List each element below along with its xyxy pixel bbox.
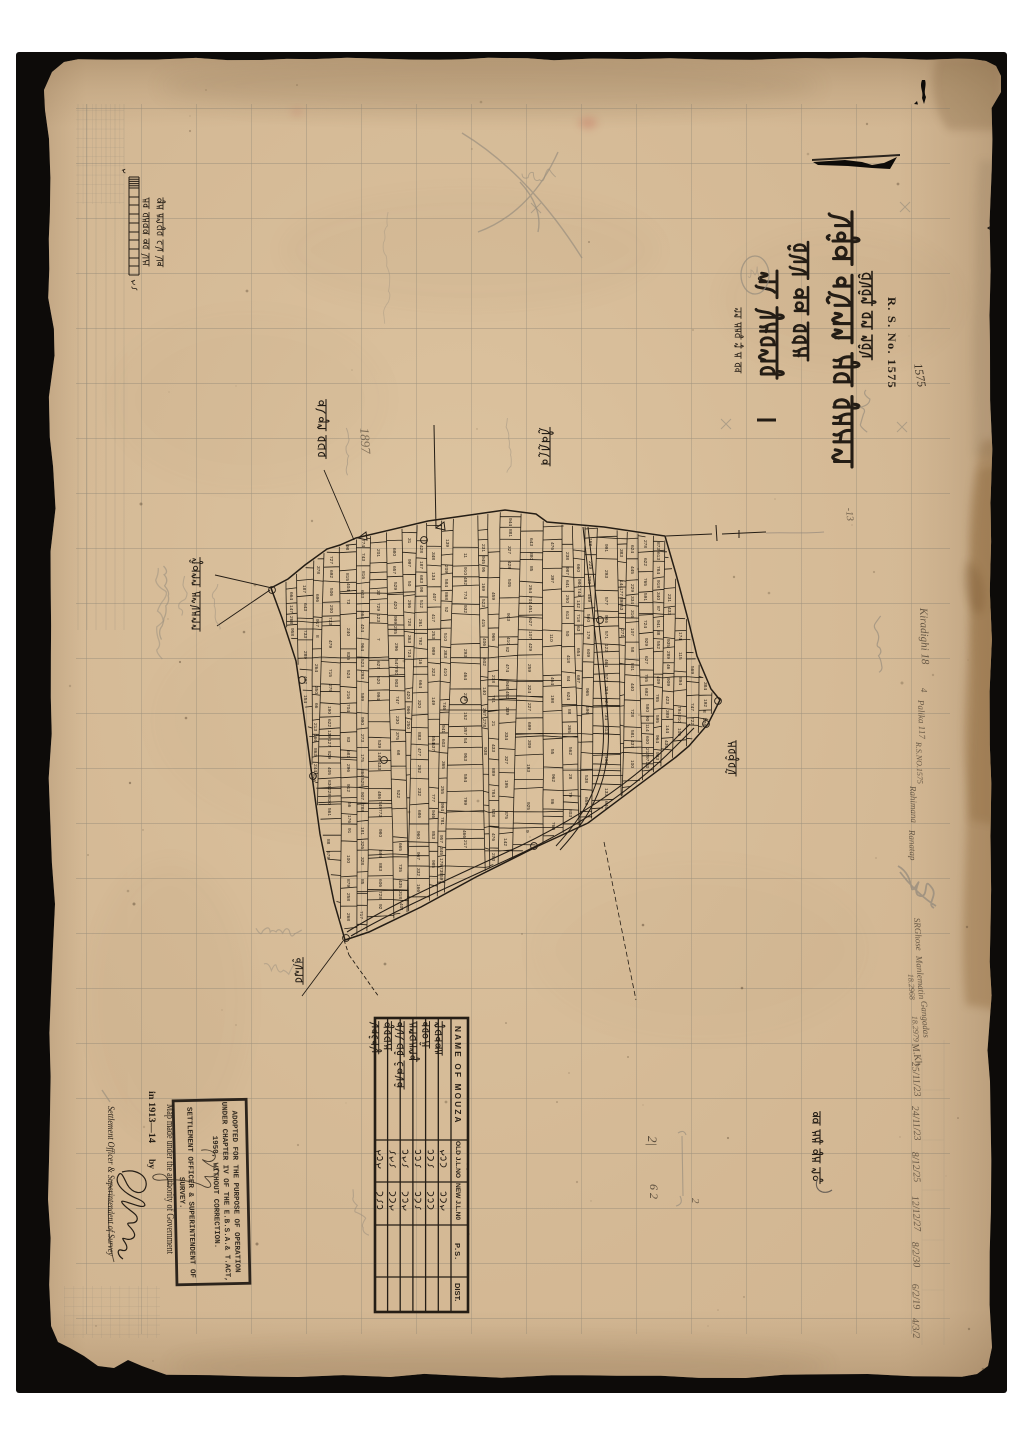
svg-text:523: 523 [480,599,486,607]
svg-text:Ranatap: Ranatap [907,829,918,861]
svg-text:378: 378 [315,566,321,574]
svg-text:122: 122 [603,644,609,652]
svg-text:401: 401 [398,903,404,911]
svg-text:747: 747 [689,703,695,711]
svg-text:999: 999 [392,616,398,624]
svg-text:198: 198 [549,695,555,703]
svg-text:941: 941 [440,725,446,733]
svg-text:55: 55 [549,749,555,755]
svg-text:87: 87 [655,606,661,612]
svg-text:NEW J.L.N0: NEW J.L.N0 [454,1183,461,1220]
svg-text:760: 760 [550,822,556,830]
svg-text:664: 664 [417,680,423,688]
svg-text:Rahimana: Rahimana [908,785,919,824]
svg-text:293: 293 [603,570,609,578]
svg-text:in 1913—14: in 1913—14 [146,1091,156,1143]
svg-text:107: 107 [527,631,533,639]
svg-text:SURVEY.: SURVEY. [177,1177,186,1209]
svg-text:418: 418 [565,655,571,663]
svg-text:363: 363 [406,635,412,643]
svg-text:271: 271 [619,629,625,637]
svg-text:476: 476 [549,542,555,550]
svg-text:909: 909 [665,678,671,686]
svg-text:552: 552 [655,641,661,649]
svg-text:744: 744 [576,588,582,596]
svg-text:665: 665 [397,843,403,851]
svg-text:704: 704 [345,704,351,712]
svg-text:2|: 2| [645,1136,660,1146]
svg-text:727: 727 [328,556,334,564]
svg-text:596: 596 [584,706,590,714]
svg-text:883: 883 [416,732,422,740]
svg-text:935: 935 [665,639,671,647]
svg-text:309: 309 [526,740,532,748]
svg-text:660: 660 [575,564,581,572]
svg-text:733: 733 [302,630,308,638]
svg-text:357: 357 [462,727,468,735]
svg-text:643: 643 [528,538,534,546]
svg-text:278: 278 [642,540,648,548]
svg-text:792: 792 [417,637,423,645]
svg-text:229: 229 [587,561,593,569]
svg-text:774: 774 [462,591,468,599]
svg-text:836: 836 [345,652,351,660]
svg-text:239: 239 [462,693,468,701]
svg-text:154: 154 [302,695,308,703]
svg-text:539: 539 [376,740,382,748]
svg-text:169: 169 [480,583,486,591]
svg-text:264: 264 [527,585,533,593]
svg-text:622: 622 [642,558,648,566]
svg-text:791: 791 [490,695,496,703]
svg-text:107: 107 [629,628,635,636]
svg-text:8/2/30: 8/2/30 [909,1241,922,1267]
svg-text:240: 240 [345,628,351,636]
svg-text:476: 476 [701,718,707,726]
svg-text:106: 106 [676,728,682,736]
svg-text:420: 420 [405,691,411,699]
svg-text:980: 980 [576,579,582,587]
svg-text:451: 451 [527,605,533,613]
svg-text:250: 250 [405,721,411,729]
svg-text:436: 436 [663,740,669,748]
svg-text:957: 957 [438,835,444,843]
svg-text:82: 82 [504,647,510,653]
svg-text:179: 179 [438,858,444,866]
svg-text:464: 464 [462,672,468,680]
svg-text:258: 258 [345,893,351,901]
svg-text:728: 728 [629,709,635,717]
svg-text:683: 683 [418,575,424,583]
svg-text:2: 2 [689,1198,701,1204]
svg-text:327: 327 [506,546,512,554]
svg-text:389: 389 [664,710,670,718]
svg-text:320: 320 [416,700,422,708]
svg-text:794: 794 [676,706,682,714]
svg-text:428: 428 [418,545,424,553]
svg-text:383: 383 [442,650,448,658]
svg-text:201: 201 [375,549,381,557]
svg-text:187: 187 [418,561,424,569]
svg-text:734: 734 [603,712,609,720]
svg-text:433: 433 [490,744,496,752]
svg-text:289: 289 [302,651,308,659]
svg-text:86: 86 [549,799,555,805]
svg-text:476: 476 [490,833,496,841]
svg-text:50: 50 [406,581,412,587]
svg-text:464: 464 [549,677,555,685]
svg-text:873: 873 [655,542,661,550]
svg-text:350: 350 [313,686,319,694]
svg-text:228: 228 [326,788,332,796]
svg-text:380: 380 [528,552,534,560]
svg-text:123: 123 [375,614,381,622]
svg-text:912: 912 [345,784,351,792]
svg-text:149: 149 [376,752,382,760]
svg-text:654: 654 [575,648,581,656]
svg-text:735: 735 [397,864,403,872]
svg-text:83: 83 [345,737,351,743]
svg-text:410: 410 [505,637,511,645]
svg-text:512: 512 [418,600,424,608]
svg-text:100: 100 [629,760,635,768]
svg-text:6 2: 6 2 [647,1184,661,1199]
svg-text:664: 664 [288,592,294,600]
svg-text:520: 520 [375,676,381,684]
svg-text:606: 606 [377,879,383,887]
svg-text:139: 139 [326,730,332,738]
svg-text:784: 784 [655,566,661,574]
svg-text:953: 953 [462,753,468,761]
svg-text:964: 964 [359,643,365,651]
svg-text:54: 54 [462,738,468,744]
svg-text:88: 88 [655,630,661,636]
svg-text:244: 244 [312,764,318,772]
svg-text:365: 365 [566,725,572,733]
svg-text:917: 917 [314,619,320,627]
svg-text:529: 529 [392,582,398,590]
svg-text:293: 293 [462,649,468,657]
svg-text:600: 600 [644,736,650,744]
svg-text:32: 32 [375,590,381,596]
svg-text:231: 231 [480,544,486,552]
svg-text:142: 142 [575,600,581,608]
svg-text:98: 98 [418,587,424,593]
svg-text:98: 98 [344,545,350,551]
svg-text:8/12/25: 8/12/25 [909,1151,922,1182]
svg-text:452: 452 [504,691,510,699]
svg-text:6/2/19: 6/2/19 [909,1283,922,1309]
svg-text:110: 110 [548,634,554,642]
svg-text:103: 103 [603,756,609,764]
svg-text:84: 84 [565,676,571,682]
svg-text:932: 932 [462,605,468,613]
svg-text:594: 594 [462,774,468,782]
svg-text:127: 127 [326,739,332,747]
svg-text:56: 56 [346,802,352,808]
svg-text:990: 990 [359,717,365,725]
svg-text:440: 440 [629,683,635,691]
svg-text:268: 268 [288,616,294,624]
svg-text:824: 824 [603,698,609,706]
svg-text:7: 7 [375,638,381,641]
svg-text:743: 743 [360,553,366,561]
svg-text:997: 997 [406,559,412,567]
svg-text:250: 250 [564,595,570,603]
svg-text:581: 581 [629,730,635,738]
svg-text:627: 627 [643,656,649,664]
svg-text:231: 231 [666,594,672,602]
svg-text:17: 17 [917,730,927,740]
svg-text:903: 903 [505,613,511,621]
svg-text:334: 334 [629,596,635,604]
svg-text:528: 528 [490,809,496,817]
svg-text:285: 285 [392,626,398,634]
svg-text:960: 960 [415,831,421,839]
svg-text:866: 866 [359,769,365,777]
svg-text:8: 8 [314,635,320,638]
svg-text:429: 429 [527,643,533,651]
svg-text:168: 168 [587,538,593,546]
svg-text:332: 332 [415,868,421,876]
svg-text:384: 384 [702,682,708,690]
svg-text:-13: -13 [843,507,855,521]
svg-text:989: 989 [430,647,436,655]
svg-text:410: 410 [442,668,448,676]
svg-text:73: 73 [345,599,351,605]
svg-text:348: 348 [430,552,436,560]
svg-text:9: 9 [524,830,530,833]
svg-text:692: 692 [328,570,334,578]
svg-text:728: 728 [377,891,383,899]
svg-text:142: 142 [502,838,508,846]
svg-text:599: 599 [359,693,365,701]
svg-text:945: 945 [480,556,486,564]
svg-text:375: 375 [394,732,400,740]
svg-text:883: 883 [377,863,383,871]
svg-text:641: 641 [564,580,570,588]
svg-text:718: 718 [575,614,581,622]
svg-text:591: 591 [642,593,648,601]
svg-text:21: 21 [490,721,496,727]
svg-text:85: 85 [359,879,365,885]
svg-text:561: 561 [326,808,332,816]
svg-text:829: 829 [326,751,332,759]
svg-text:894: 894 [677,677,683,685]
svg-text:DIST.: DIST. [453,1283,462,1301]
svg-text:715: 715 [327,669,333,677]
svg-text:365: 365 [440,761,446,769]
svg-text:962: 962 [550,774,556,782]
svg-text:659: 659 [583,797,589,805]
svg-text:209: 209 [443,565,449,573]
svg-text:174: 174 [677,632,683,640]
svg-text:193: 193 [525,764,531,772]
svg-text:Kiradighi 18: Kiradighi 18 [917,607,931,665]
svg-text:755: 755 [643,674,649,682]
svg-text:907: 907 [359,792,365,800]
svg-text:424: 424 [359,624,365,632]
svg-text:261: 261 [417,619,423,627]
svg-text:699: 699 [377,850,383,858]
svg-text:324: 324 [526,685,532,693]
svg-text:646: 646 [603,801,609,809]
svg-text:965: 965 [584,688,590,696]
svg-text:85: 85 [528,566,534,572]
svg-text:293: 293 [490,853,496,861]
svg-text:889: 889 [490,768,496,776]
svg-text:404: 404 [345,583,351,591]
svg-text:95: 95 [480,567,486,573]
svg-text:88: 88 [325,839,331,845]
svg-text:729: 729 [375,603,381,611]
svg-text:577: 577 [603,674,609,682]
svg-text:602: 602 [481,658,487,666]
svg-text:230: 230 [394,716,400,724]
svg-text:79: 79 [567,792,573,798]
svg-text:967: 967 [415,852,421,860]
svg-text:50: 50 [564,631,570,637]
svg-text:765: 765 [642,578,648,586]
svg-text:OLD J.L.NO: OLD J.L.NO [454,1141,461,1178]
svg-text:428: 428 [506,561,512,569]
svg-text:326: 326 [359,841,365,849]
svg-text:613: 613 [564,611,570,619]
svg-text:445: 445 [629,566,635,574]
svg-text:435: 435 [397,880,403,888]
svg-text:216: 216 [345,691,351,699]
svg-text:334: 334 [503,732,509,740]
svg-text:777: 777 [430,794,436,802]
svg-text:560: 560 [585,614,591,622]
svg-text:699: 699 [526,722,532,730]
svg-text:323: 323 [430,668,436,676]
svg-text:613: 613 [603,726,609,734]
svg-text:966: 966 [405,706,411,714]
svg-text:948: 948 [504,681,510,689]
svg-text:46: 46 [665,664,671,670]
svg-text:16: 16 [417,659,423,665]
svg-text:562: 562 [567,747,573,755]
svg-text:179: 179 [585,631,591,639]
svg-text:724: 724 [406,649,412,657]
svg-text:417: 417 [430,614,436,622]
svg-text:195: 195 [503,780,509,788]
svg-text:686: 686 [416,810,422,818]
svg-text:238: 238 [564,552,570,560]
svg-text:469: 469 [586,594,592,602]
svg-text:701: 701 [527,596,533,604]
svg-text:66: 66 [313,703,319,709]
svg-text:133: 133 [603,788,609,796]
svg-text:579: 579 [325,851,331,859]
svg-text:696: 696 [314,594,320,602]
svg-text:946: 946 [430,810,436,818]
svg-text:722: 722 [689,717,695,725]
svg-text:941: 941 [655,620,661,628]
svg-text:229: 229 [629,584,635,592]
svg-text:881: 881 [507,529,513,537]
svg-text:643: 643 [302,603,308,611]
svg-text:18.2968: 18.2968 [906,974,917,1001]
svg-text:571: 571 [603,631,609,639]
svg-text:140: 140 [481,687,487,695]
svg-text:983: 983 [654,752,660,760]
svg-text:190: 190 [326,706,332,714]
svg-text:149: 149 [430,697,436,705]
svg-text:609: 609 [585,649,591,657]
svg-text:987: 987 [564,567,570,575]
svg-text:181: 181 [359,827,365,835]
svg-text:964: 964 [654,735,660,743]
svg-text:397: 397 [549,575,555,583]
svg-text:918: 918 [655,580,661,588]
svg-text:664: 664 [359,611,365,619]
svg-text:409: 409 [655,676,661,684]
svg-text:746: 746 [441,702,447,710]
svg-text:784: 784 [490,789,496,797]
svg-text:Palika 1: Palika 1 [916,699,927,731]
svg-text:486: 486 [376,791,382,799]
svg-text:810: 810 [676,715,682,723]
svg-text:853: 853 [430,831,436,839]
svg-text:717: 717 [358,911,364,919]
svg-text:627: 627 [375,661,381,669]
svg-text:20: 20 [644,763,650,769]
svg-text:781: 781 [439,817,445,825]
svg-text:218: 218 [490,675,496,683]
svg-text:965: 965 [490,633,496,641]
svg-text:627: 627 [527,618,533,626]
svg-text:176: 176 [346,815,352,823]
svg-text:68: 68 [395,750,401,756]
svg-text:213: 213 [312,723,318,731]
svg-text:724: 724 [642,620,648,628]
svg-text:266: 266 [406,600,412,608]
svg-text:166: 166 [312,734,318,742]
svg-text:293: 293 [359,671,365,679]
svg-text:728: 728 [406,618,412,626]
svg-text:492: 492 [462,577,468,585]
svg-text:383: 383 [618,549,624,557]
svg-text:525: 525 [359,778,365,786]
svg-text:227: 227 [526,703,532,711]
svg-text:4/3/2: 4/3/2 [909,1317,921,1338]
svg-text:433: 433 [376,762,382,770]
svg-text:255: 255 [439,786,445,794]
svg-text:Settlement Officer & Superinte: Settlement Officer & Superintendent of S… [105,1106,116,1257]
svg-text:420: 420 [392,601,398,609]
svg-text:477: 477 [416,748,422,756]
svg-text:407: 407 [431,593,437,601]
svg-text:262: 262 [416,765,422,773]
svg-text:375: 375 [503,811,509,819]
svg-text:459: 459 [490,592,496,600]
svg-text:657: 657 [391,566,397,574]
svg-text:166: 166 [415,884,421,892]
svg-text:NAME OF MOUZA: NAME OF MOUZA [453,1026,462,1125]
svg-text:510: 510 [442,633,448,641]
svg-text:474: 474 [504,664,510,672]
svg-text:187: 187 [301,585,307,593]
svg-text:433: 433 [666,607,672,615]
svg-text:11: 11 [462,553,468,558]
svg-text:340: 340 [655,592,661,600]
svg-text:53: 53 [618,605,624,611]
svg-text:925: 925 [525,802,531,810]
svg-text:152: 152 [462,712,468,720]
svg-text:603: 603 [440,739,446,747]
